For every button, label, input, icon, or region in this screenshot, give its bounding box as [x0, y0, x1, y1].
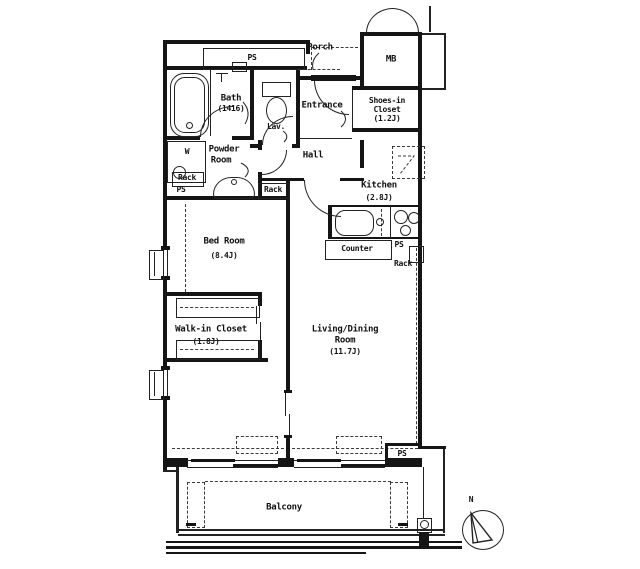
sliding-door: [285, 392, 286, 416]
balcony-label: Balcony: [266, 504, 302, 513]
counter-label: Counter: [341, 245, 373, 253]
kitchen-faucet: [376, 218, 384, 226]
wall: [258, 178, 304, 181]
ac-space: [236, 436, 278, 454]
ac-space: [336, 436, 382, 454]
wall: [418, 32, 422, 90]
bath-label: Bath: [221, 95, 241, 104]
stove-burner: [408, 212, 420, 224]
wall: [292, 144, 300, 148]
wall: [250, 66, 254, 140]
ground-line: [166, 546, 462, 549]
label-leader: [313, 53, 319, 69]
shutter-box-line: [154, 252, 155, 276]
bedroom-label: Bed Room: [204, 238, 245, 247]
shoes-closet-label2: Closet: [373, 106, 400, 114]
window-sash: [233, 464, 278, 467]
bedroom-size-label: (8.4J): [210, 252, 237, 260]
window: [294, 467, 385, 468]
wall: [278, 458, 294, 467]
window: [187, 467, 278, 468]
balcony-wall: [443, 449, 445, 533]
ps-label: PS: [247, 54, 256, 62]
wall: [418, 90, 422, 446]
wall: [286, 178, 290, 392]
living-size-label: (11.7J): [329, 348, 361, 356]
washer-label: W: [185, 148, 190, 156]
shutter-box: [149, 250, 164, 280]
ps-label: PS: [394, 241, 403, 249]
stove-burner: [394, 210, 408, 224]
door-arc: [392, 8, 419, 33]
porch-line: [298, 69, 340, 70]
wall: [418, 446, 446, 449]
powder-label: Powder: [209, 146, 240, 155]
closet-edge: [352, 90, 353, 128]
ground-line: [166, 552, 366, 554]
lav-door-arc: [262, 116, 293, 145]
kitchen-sink: [335, 210, 374, 236]
vanity-faucet: [231, 179, 237, 185]
wall: [163, 40, 310, 44]
closet-rod-pipe: [180, 307, 254, 308]
entrance-step: [298, 138, 352, 139]
wic-label: Walk-in Closet: [175, 326, 247, 335]
curtain-line: [416, 248, 417, 444]
wall: [352, 86, 422, 90]
balcony-wall: [176, 467, 179, 533]
closet-rod: [176, 340, 260, 360]
floor-plan: PS Porch MB Bath (1416) Lav. W Powder Ro…: [0, 0, 640, 569]
kitchen-label: Kitchen: [361, 182, 397, 191]
balcony-wall: [178, 534, 445, 536]
bathtub-drain: [186, 122, 193, 129]
counter-edge: [328, 205, 422, 207]
wall: [284, 390, 292, 393]
ground-line: [166, 541, 462, 543]
mb-label: MB: [386, 56, 396, 65]
drain-cap: [420, 520, 429, 529]
ps-label: PS: [176, 186, 185, 194]
shoes-closet-label: Shoes-in: [369, 97, 405, 105]
wall: [232, 136, 253, 140]
counter-edge: [328, 237, 422, 239]
building-edge: [422, 33, 446, 35]
balcony-line: [205, 481, 391, 482]
window: [167, 248, 168, 278]
living-label2: Room: [335, 337, 355, 346]
rack-label: Rack: [264, 186, 282, 194]
living-label: Living/Dining: [312, 326, 379, 335]
counter-divider: [390, 206, 391, 238]
balcony-wall: [178, 529, 445, 531]
window-sash: [297, 459, 341, 462]
window: [167, 368, 168, 398]
shower-icon: [221, 73, 222, 82]
porch-label: Porch: [307, 44, 333, 53]
shutter-box: [149, 370, 164, 400]
wall: [385, 458, 422, 467]
wall: [163, 458, 188, 467]
window-sash: [341, 464, 386, 467]
door-arc: [366, 8, 393, 33]
wall: [360, 140, 364, 168]
partition-foot: [398, 523, 408, 526]
toilet-tank: [262, 82, 291, 97]
rack-label: Rack: [394, 260, 412, 268]
compass-circle: [462, 510, 504, 550]
ps-label: PS: [397, 450, 406, 458]
shutter-box-line: [154, 372, 155, 396]
fridge-space: [392, 146, 425, 179]
vent-icon: [232, 62, 247, 72]
wall: [296, 76, 311, 80]
wall: [163, 292, 262, 296]
wall: [385, 443, 421, 446]
wall: [284, 435, 292, 438]
drain-pipe-line: [423, 467, 424, 519]
wall: [385, 443, 388, 467]
building-edge: [429, 6, 431, 32]
powder-door-arc: [262, 150, 287, 175]
stove-burner: [400, 225, 411, 236]
hall-label: Hall: [303, 152, 323, 161]
balcony-partition: [390, 482, 408, 528]
closet-rod-pipe: [180, 349, 254, 350]
balcony-partition: [187, 482, 205, 528]
wall: [360, 32, 364, 90]
sliding-door: [260, 322, 261, 340]
window-sash: [191, 459, 235, 462]
powder-label2: Room: [211, 157, 231, 166]
building-edge: [422, 88, 445, 90]
kitchen-size-label: (2.8J): [365, 194, 392, 202]
building-edge: [444, 33, 446, 90]
label-leader: [241, 163, 248, 177]
ceiling-line: [185, 204, 186, 292]
partition-foot: [186, 523, 196, 526]
wall: [352, 128, 422, 132]
shower-icon: [216, 73, 228, 74]
closet-rod: [176, 298, 260, 318]
rack-label: Rack: [178, 174, 196, 182]
living-door-arc: [304, 180, 341, 217]
shoes-closet-size: (1.2J): [373, 115, 400, 123]
north-label: N: [469, 496, 474, 504]
